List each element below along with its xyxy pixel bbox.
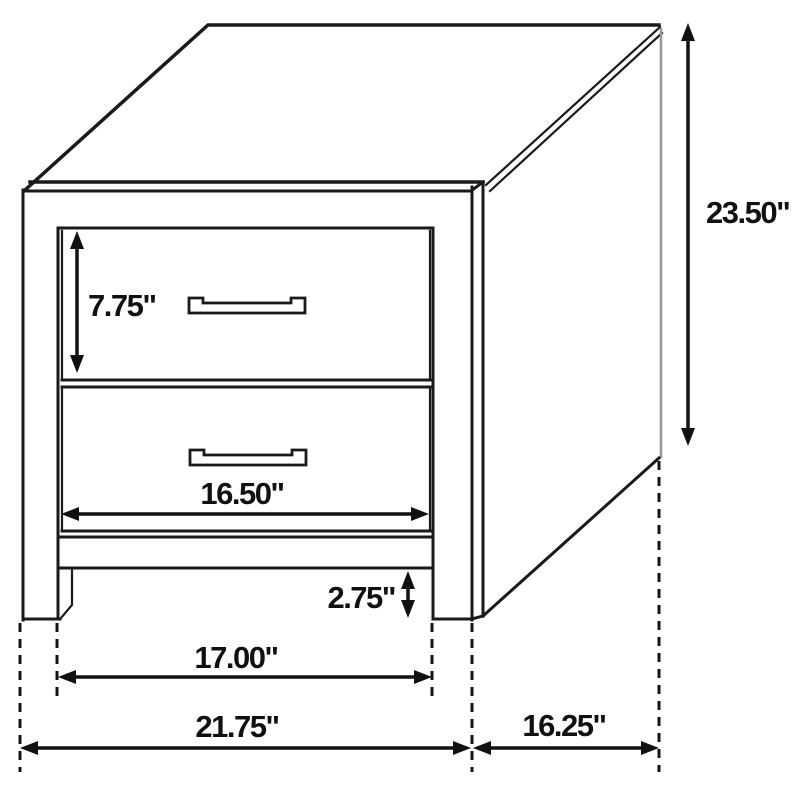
side-bottom-edge (483, 458, 659, 616)
drawer-2-handle (190, 450, 306, 465)
top-back-edge (25, 25, 659, 190)
base-height-label: 2.75" (327, 580, 395, 615)
nightstand-dimension-diagram: 7.75" 16.50" 2.75" 17.00" 21.75" 16.25" (0, 0, 800, 800)
arrow-left-icon (61, 507, 79, 521)
depth-label: 16.25" (522, 708, 605, 743)
arrow-up-icon (70, 231, 84, 249)
top-surface (25, 25, 662, 191)
diagram-canvas: 7.75" 16.50" 2.75" 17.00" 21.75" 16.25" (0, 0, 800, 800)
arrow-left-icon (473, 741, 491, 755)
legs (23, 570, 483, 619)
top-right-edge-outer (486, 27, 660, 185)
arrow-right-icon (414, 670, 432, 684)
overall-width-label: 21.75" (195, 709, 278, 744)
right-leg-bottom-edge (433, 616, 483, 619)
dimension-drawer-width: 16.50" (61, 476, 429, 521)
arrow-up-icon (401, 571, 415, 589)
dimension-base-height: 2.75" (327, 571, 415, 618)
arrow-down-icon (70, 355, 84, 373)
inner-width-label: 17.00" (194, 640, 277, 675)
drawer-1-handle (189, 298, 305, 313)
overall-height-label: 23.50" (706, 195, 789, 230)
arrow-right-icon (453, 741, 471, 755)
arrow-left-icon (58, 670, 76, 684)
dimension-inner-width: 17.00" (58, 640, 432, 684)
front-frame (23, 187, 472, 620)
arrow-down-icon (681, 428, 695, 446)
dimension-overall-height: 23.50" (681, 23, 789, 446)
top-right-edge-inner (490, 33, 662, 191)
arrow-right-icon (411, 507, 429, 521)
drawer-width-label: 16.50" (200, 476, 283, 511)
dimension-drawer-height: 7.75" (70, 231, 156, 373)
arrow-up-icon (681, 23, 695, 41)
arrow-left-icon (20, 741, 38, 755)
drawer-height-label: 7.75" (88, 288, 156, 323)
dimension-depth: 16.25" (473, 708, 659, 755)
dimension-overall-width: 21.75" (20, 709, 471, 755)
left-leg-side-face-edge (61, 570, 72, 618)
arrow-down-icon (401, 600, 415, 618)
arrow-right-icon (641, 741, 659, 755)
